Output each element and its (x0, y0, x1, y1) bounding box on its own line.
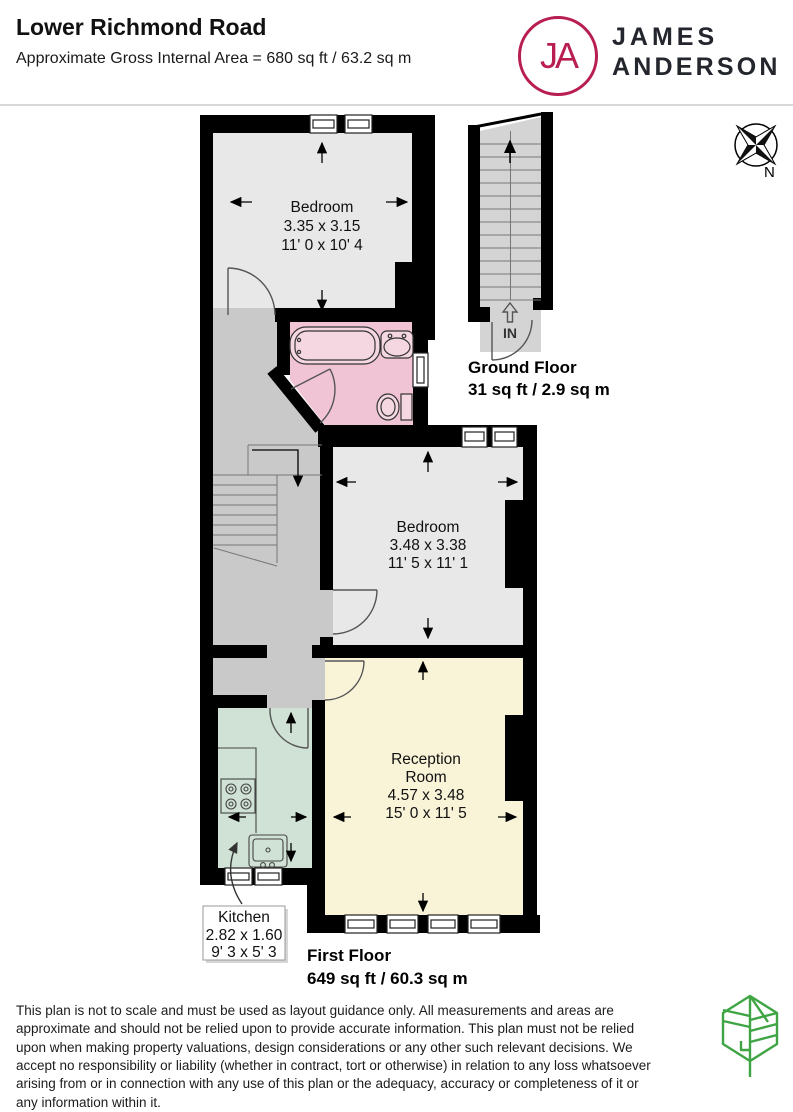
first-floor-name: First Floor (307, 946, 391, 965)
bedroom-1-metric: 3.35 x 3.15 (284, 218, 361, 235)
window (345, 915, 377, 933)
bath-tub (290, 327, 380, 364)
floorplan-canvas: IN (0, 0, 793, 1080)
compass-north-label: N (764, 164, 775, 181)
area-subtitle: Approximate Gross Internal Area = 680 sq… (16, 50, 411, 68)
window (345, 115, 372, 133)
kitchen-imperial: 9' 3 x 5' 3 (211, 944, 276, 961)
doorway-floor (267, 645, 312, 658)
reception-imperial: 15' 0 x 11' 5 (385, 805, 466, 822)
doorway-floor (312, 658, 325, 700)
kitchen-metric: 2.82 x 1.60 (206, 927, 283, 944)
leaf-logo-icon (712, 992, 782, 1080)
bedroom-2-imperial: 11' 5 x 11' 1 (388, 555, 468, 572)
bedroom-1-imperial: 11' 0 x 10' 4 (281, 237, 363, 254)
page-title: Lower Richmond Road (16, 14, 266, 41)
window (310, 115, 337, 133)
window (413, 353, 428, 387)
window (387, 915, 418, 933)
compass-icon: N (718, 107, 793, 183)
header: Lower Richmond Road Approximate Gross In… (0, 0, 793, 106)
window (225, 868, 252, 885)
entrance-label: IN (503, 325, 517, 341)
wash-basin (381, 331, 413, 358)
bedroom-1-name: Bedroom (291, 199, 354, 216)
window (492, 427, 517, 447)
agency-name-line1: JAMES (612, 22, 781, 52)
window (468, 915, 500, 933)
window (255, 868, 282, 885)
doorway-floor (267, 695, 312, 708)
reception-name-1: Reception (391, 751, 461, 768)
agency-logo: JA JAMES ANDERSON (512, 12, 792, 100)
toilet (377, 394, 412, 420)
window (462, 427, 487, 447)
disclaimer-text: This plan is not to scale and must be us… (16, 1002, 656, 1112)
reception-name-2: Room (405, 769, 446, 786)
bedroom-2-name: Bedroom (397, 519, 460, 536)
ja-monogram-icon: JA (518, 16, 598, 96)
ground-floor-name: Ground Floor (468, 358, 577, 377)
first-floor-area: 649 sq ft / 60.3 sq m (307, 969, 468, 988)
reception-metric: 4.57 x 3.48 (388, 787, 465, 804)
doorway-floor (320, 590, 333, 637)
room-floors (213, 117, 541, 915)
ground-floor-area: 31 sq ft / 2.9 sq m (468, 380, 610, 399)
window (428, 915, 458, 933)
kitchen-name: Kitchen (218, 909, 270, 926)
ja-monogram-text: JA (540, 35, 576, 76)
agency-name-line2: ANDERSON (612, 52, 781, 82)
agency-name: JAMES ANDERSON (612, 22, 781, 82)
bedroom-2-metric: 3.48 x 3.38 (390, 537, 467, 554)
